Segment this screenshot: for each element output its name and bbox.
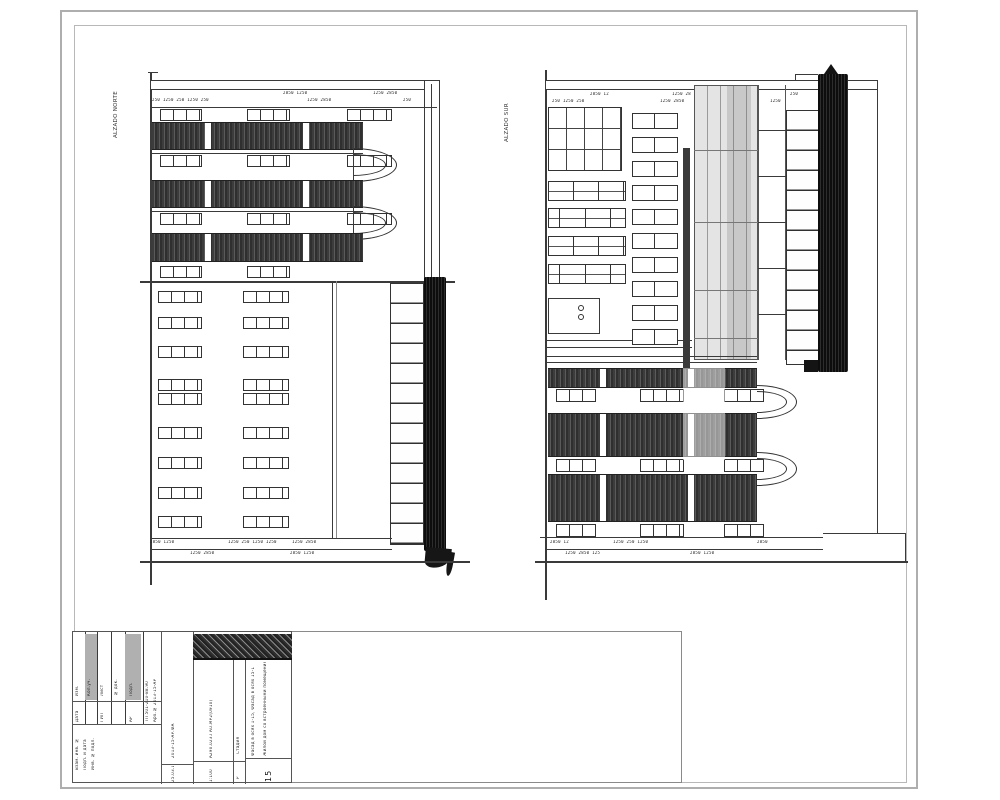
window	[158, 291, 202, 303]
core-floor-line	[694, 338, 758, 339]
tb-line	[161, 764, 193, 765]
base-line	[150, 549, 392, 550]
wing-line	[545, 356, 757, 357]
tb-line	[111, 632, 112, 724]
dimension-text: 1250 250 1250 1250	[228, 540, 290, 544]
window	[243, 317, 289, 329]
dimension-text: 250 1250 250	[552, 99, 642, 103]
tb-stamp-code: А290.023.ГАО.МР2(0910)	[209, 664, 213, 758]
window	[158, 516, 202, 528]
drawing-sheet: ALZADO NORTE 2850 1250 1250 2850 250 125…	[0, 0, 1000, 800]
tb-line	[233, 761, 245, 762]
tb-line	[73, 724, 161, 725]
canopy-line	[545, 347, 692, 348]
floor-line	[150, 153, 363, 154]
window	[158, 487, 202, 499]
band-gap	[688, 475, 694, 521]
window-pair	[632, 305, 678, 321]
window-pair	[632, 161, 678, 177]
window-pair	[632, 113, 678, 129]
step-line	[823, 533, 905, 534]
tb-sub-label: Дата	[75, 703, 79, 722]
band-gap	[303, 234, 309, 261]
dimension-text: 1250 2850	[307, 98, 371, 102]
base-line	[545, 549, 823, 550]
base-line	[150, 538, 392, 539]
window-pair	[632, 209, 678, 225]
slab-line	[758, 222, 786, 223]
band-gap	[303, 123, 309, 149]
window	[243, 427, 289, 439]
tb-rev-label: № док.	[114, 636, 118, 696]
tb-drawing-name: Жилой дом со встроенными помещениями	[263, 662, 267, 756]
band-gap	[600, 414, 606, 456]
ground-line	[140, 561, 470, 563]
base-line	[540, 537, 823, 538]
window	[247, 213, 290, 225]
ground-line	[535, 561, 908, 563]
window	[640, 389, 684, 402]
dimension-text: 2850 1250	[290, 551, 338, 555]
window-strip	[548, 264, 626, 284]
dimension-text: 1250 2850	[190, 551, 240, 555]
stair-ladder	[390, 283, 424, 545]
dimension-text: 2850 12	[550, 540, 594, 544]
band-gap	[600, 475, 606, 521]
window	[640, 459, 684, 472]
band-gap	[205, 123, 211, 149]
entrance-door	[548, 298, 600, 334]
window	[243, 457, 289, 469]
louver-band	[152, 180, 363, 208]
louver-band	[152, 233, 363, 262]
window	[243, 346, 289, 358]
tb-line	[97, 632, 98, 724]
window-pair	[632, 185, 678, 201]
dimension-text: 2850	[757, 540, 791, 544]
wing-line	[545, 362, 757, 363]
dimension-text: 1250 2850	[373, 91, 418, 95]
window	[158, 379, 202, 391]
window	[158, 317, 202, 329]
tb-line	[193, 658, 292, 660]
louver-band	[548, 413, 757, 457]
window	[158, 346, 202, 358]
window	[243, 393, 289, 405]
dimension-text: 2850 1250	[150, 540, 198, 544]
wall-edge-left	[545, 70, 547, 600]
window	[160, 266, 202, 278]
door-glass-circle	[578, 305, 584, 311]
tb-rev-label: Кол.уч.	[87, 636, 91, 696]
window	[556, 524, 596, 537]
sheet-number: 15	[265, 761, 274, 782]
tb-approve-line: Взам. инв. №	[75, 728, 79, 770]
dimension-text: 2850 12	[590, 92, 640, 96]
slab-line	[758, 176, 786, 177]
left-elevation-label: ALZADO NORTE	[113, 66, 119, 138]
floor-line	[150, 211, 363, 212]
tb-line	[143, 632, 144, 724]
shaft-hatch-band	[424, 277, 446, 551]
tb-scale: 1:100	[209, 764, 213, 782]
tb-sub-label: АР	[129, 703, 133, 722]
slab-line	[758, 314, 786, 315]
window-pair	[632, 233, 678, 249]
window	[556, 459, 596, 472]
window	[243, 516, 289, 528]
dimension-text: 2850 1250	[690, 551, 738, 555]
band-gap	[600, 369, 606, 387]
parapet-link-v	[795, 74, 796, 80]
tb-line	[245, 660, 246, 784]
step-edge	[905, 533, 906, 562]
tb-rev-label: Подп.	[129, 636, 133, 696]
arch-springline	[353, 148, 354, 182]
tb-stage: Стадия	[236, 664, 240, 754]
stamp-hatch	[193, 634, 292, 658]
slab-line	[758, 130, 786, 131]
core-floor-line	[694, 290, 758, 291]
louver-band	[152, 122, 363, 150]
window-strip	[548, 236, 626, 256]
tb-rev-label: Лист	[100, 636, 104, 696]
window	[247, 266, 290, 278]
band-gap	[303, 181, 309, 207]
tb-project-code: 2013-15-АР.ФА	[171, 640, 175, 758]
tb-line	[245, 758, 292, 759]
tb-rev-label: Изм.	[75, 636, 79, 696]
window-strip	[548, 181, 626, 201]
window	[160, 155, 202, 167]
core-floor-line	[694, 222, 758, 223]
dimension-text: 1250 250 1250	[613, 540, 677, 544]
slab-line	[758, 268, 786, 269]
title-block: Изм. Кол.уч. Лист № док. Подп. Дата ГИП …	[72, 631, 292, 783]
dimension-text: 250 1250 250 1250 250	[152, 98, 270, 102]
core-floor-line	[694, 150, 758, 151]
window-strip	[548, 208, 626, 228]
window-pair	[632, 137, 678, 153]
tb-approve-line: Инв. № подл.	[91, 728, 95, 770]
louver-band	[548, 368, 757, 388]
wall-edge-right-2	[336, 281, 337, 538]
tb-line	[161, 632, 162, 784]
window-pair	[632, 257, 678, 273]
dimension-text: 2850 1250	[283, 91, 333, 95]
door-glass-circle	[578, 314, 584, 320]
tb-doc-code: ТП 501-210-88.90	[145, 636, 149, 722]
corner-column-line	[431, 84, 432, 282]
window	[160, 213, 202, 225]
band-gap	[205, 234, 211, 261]
tb-doc-code: Арх.№ 2013-15-АР	[153, 636, 157, 722]
window-pair	[632, 329, 678, 345]
window	[158, 393, 202, 405]
window	[347, 109, 392, 121]
parapet	[150, 80, 440, 90]
window	[247, 109, 290, 121]
louver-band	[548, 474, 757, 522]
tb-drawing-name: Фасад в осях 1-15, Фасад в осях 15-1	[251, 662, 255, 756]
corner-column	[424, 80, 440, 282]
tb-line	[193, 761, 233, 762]
dimension-text: 1250 2850 125	[565, 551, 640, 555]
tb-line	[233, 660, 234, 784]
shaft-band-peak	[824, 64, 838, 74]
window	[160, 109, 202, 121]
tb-stage-value: Р	[236, 765, 240, 779]
window	[724, 524, 764, 537]
shadow-slot	[683, 148, 690, 370]
right-elevation-label: ALZADO SUR	[504, 72, 510, 142]
glazing-grid	[548, 107, 622, 171]
window	[158, 457, 202, 469]
window	[243, 291, 289, 303]
tb-sub-label: ГИП	[100, 703, 104, 722]
window	[247, 155, 290, 167]
dimension-text: 250	[403, 98, 418, 102]
window	[556, 389, 596, 402]
core-overlay	[683, 368, 725, 460]
window-pair	[632, 281, 678, 297]
window	[243, 379, 289, 391]
window	[158, 427, 202, 439]
shaft-hatch-band	[818, 74, 848, 372]
stair-ladder	[786, 110, 820, 365]
parapet-link	[795, 74, 818, 75]
tb-date: 25.03.13	[171, 766, 175, 782]
tb-approve-line: Подп. и дата	[83, 728, 87, 770]
band-gap	[205, 181, 211, 207]
wall-edge-right	[877, 90, 878, 533]
window	[640, 524, 684, 537]
window	[243, 487, 289, 499]
shaft-band-foot	[804, 360, 818, 372]
wall-edge-right	[332, 281, 333, 538]
dimension-text: 1250 2850	[292, 540, 338, 544]
floor-line	[150, 107, 437, 108]
